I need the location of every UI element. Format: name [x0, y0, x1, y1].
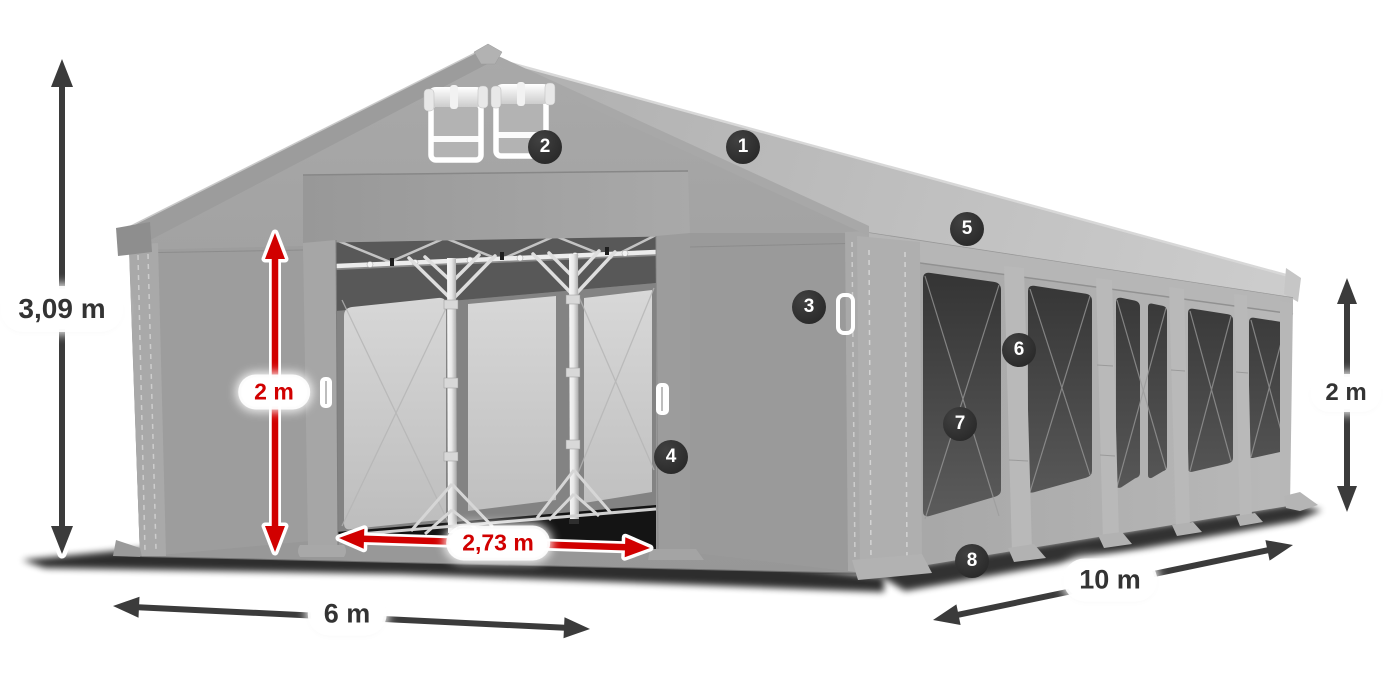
- tent-dimension-diagram: 3,09 m 2 m 2,73 m 6 m 10 m 2 m 1 2 3 4 5…: [0, 0, 1400, 700]
- dim-label-front-width: 6 m: [311, 596, 384, 633]
- dim-side-height-text: 2 m: [1325, 381, 1366, 405]
- marker-8-ground-skirt: 8: [955, 544, 989, 578]
- dim-label-total-height: 3,09 m: [3, 289, 120, 329]
- entrance-interior: [330, 230, 662, 555]
- marker-7-side-window: 7: [943, 407, 977, 441]
- dim-front-width-text: 6 m: [324, 601, 371, 628]
- tent-illustration: [0, 0, 1400, 700]
- dim-label-side-height: 2 m: [1313, 377, 1378, 409]
- dim-total-height-text: 3,09 m: [18, 295, 105, 323]
- marker-4-entrance-post: 4: [654, 440, 688, 474]
- marker-3-front-wall: 3: [792, 290, 826, 324]
- dim-entrance-width-text: 2,73 m: [462, 532, 534, 555]
- dim-label-side-length: 10 m: [1066, 562, 1154, 599]
- marker-2-gable-vents: 2: [528, 130, 562, 164]
- marker-5-valance: 5: [950, 212, 984, 246]
- dim-side-length-text: 10 m: [1079, 567, 1141, 594]
- dim-label-entrance-height: 2 m: [241, 378, 307, 407]
- dim-entrance-height-text: 2 m: [254, 381, 294, 404]
- dim-label-entrance-width: 2,73 m: [449, 529, 547, 558]
- marker-6-wall-post: 6: [1002, 333, 1036, 367]
- marker-1-roof: 1: [726, 130, 760, 164]
